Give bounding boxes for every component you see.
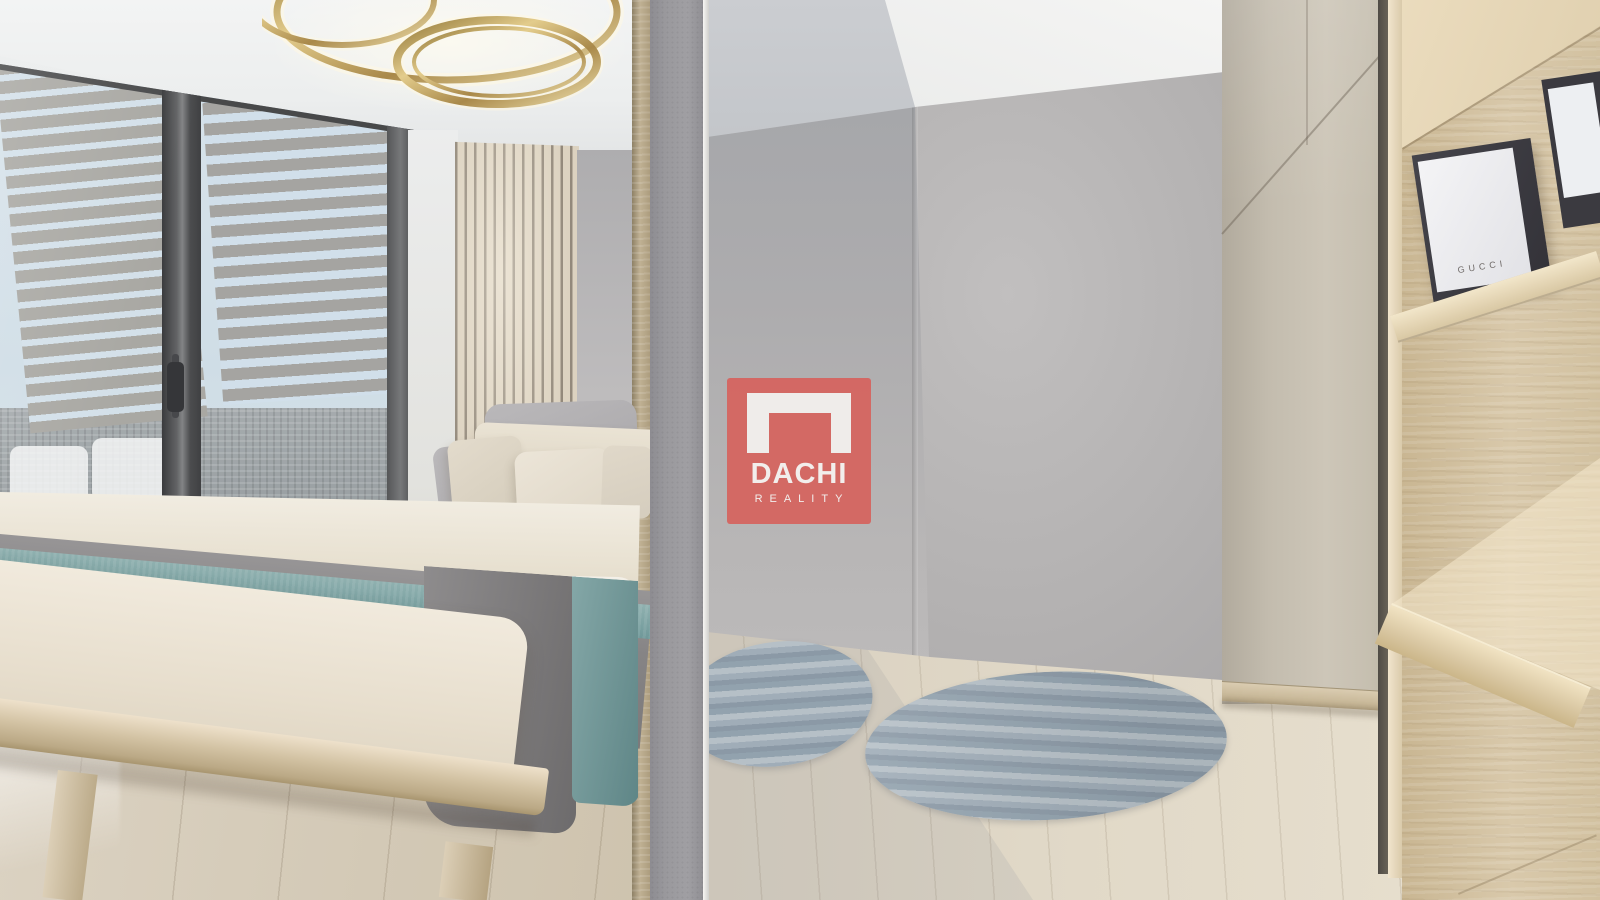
blanket-overhang-teal bbox=[572, 576, 638, 807]
watermark-title: DACHI bbox=[727, 460, 871, 489]
concrete-pillar bbox=[650, 0, 704, 900]
shelf-side-edge bbox=[1388, 0, 1403, 878]
interior-render-bedroom-dressing-room: DACHI REALITY GUCCI bbox=[0, 0, 1600, 900]
gucci-box-front: GUCCI bbox=[1418, 148, 1532, 293]
wardrobe-panel-seam bbox=[1306, 0, 1308, 145]
wardrobe-section bbox=[1222, 0, 1390, 900]
shoe-box-second-front bbox=[1548, 82, 1600, 198]
watermark-subtitle: REALITY bbox=[727, 494, 871, 505]
glass-partition-edge bbox=[703, 0, 709, 900]
dachi-reality-watermark: DACHI REALITY bbox=[727, 378, 871, 524]
door-frame-icon bbox=[747, 393, 851, 453]
wall-corner bbox=[912, 105, 918, 661]
bedroom-section bbox=[0, 0, 652, 900]
bed-leg bbox=[439, 841, 493, 900]
gold-ring-ceiling-lamp bbox=[262, 0, 642, 128]
gucci-brand-label: GUCCI bbox=[1434, 254, 1530, 278]
oak-shelf-unit: GUCCI bbox=[1378, 0, 1600, 900]
